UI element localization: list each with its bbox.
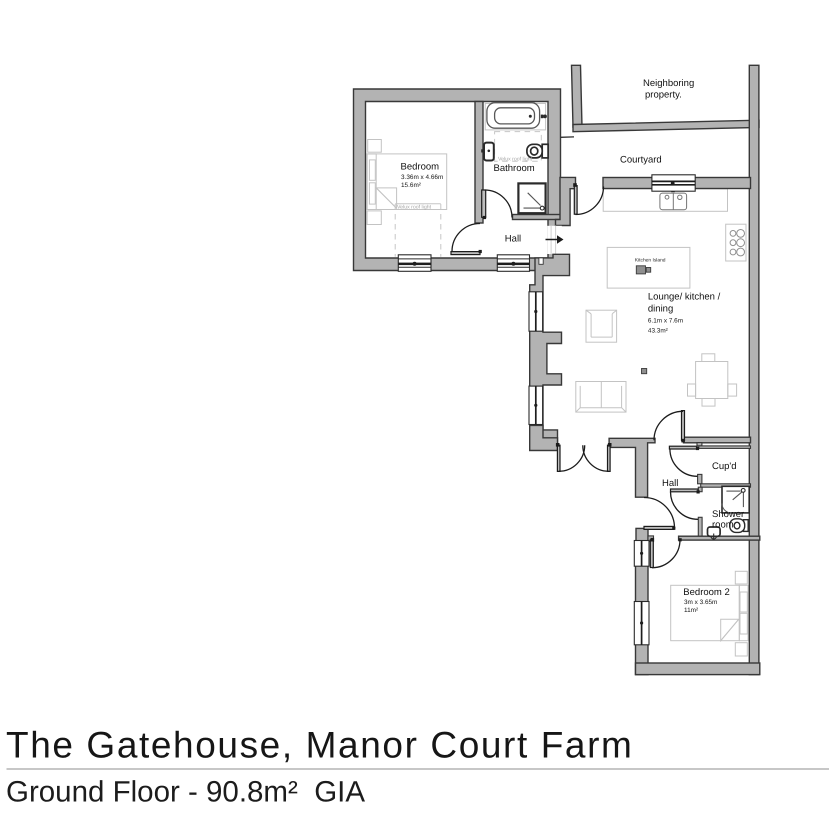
svg-text:Ground Floor - 90.8m² GIA: Ground Floor - 90.8m² GIA xyxy=(6,776,365,809)
svg-text:Lounge/ kitchen /: Lounge/ kitchen / xyxy=(648,292,721,303)
svg-text:Velux roof light: Velux roof light xyxy=(498,156,533,162)
svg-text:11m²: 11m² xyxy=(684,607,698,614)
svg-text:Hall: Hall xyxy=(505,234,521,245)
svg-text:room: room xyxy=(712,520,734,531)
svg-text:Shower: Shower xyxy=(712,509,744,520)
svg-text:6.1m x 7.6m: 6.1m x 7.6m xyxy=(648,318,683,325)
svg-text:Bedroom 2: Bedroom 2 xyxy=(683,587,729,598)
svg-text:Velux roof light: Velux roof light xyxy=(397,205,432,211)
svg-text:3.36m x 4.66m: 3.36m x 4.66m xyxy=(401,174,443,181)
svg-text:Kitchen Island: Kitchen Island xyxy=(635,257,666,263)
svg-text:dining: dining xyxy=(648,304,673,315)
svg-text:15.6m²: 15.6m² xyxy=(401,182,421,189)
svg-text:property.: property. xyxy=(645,90,682,101)
svg-text:Courtyard: Courtyard xyxy=(620,154,662,165)
svg-text:Bedroom: Bedroom xyxy=(401,162,440,173)
svg-text:43.3m²: 43.3m² xyxy=(648,328,668,335)
svg-text:Neighboring: Neighboring xyxy=(643,78,694,89)
svg-text:The Gatehouse, Manor Court Far: The Gatehouse, Manor Court Farm xyxy=(6,725,633,766)
svg-text:3m x 3.65m: 3m x 3.65m xyxy=(684,599,717,606)
svg-text:Hall: Hall xyxy=(662,478,678,489)
svg-text:Bathroom: Bathroom xyxy=(494,163,535,174)
svg-text:Cup'd: Cup'd xyxy=(712,461,737,472)
